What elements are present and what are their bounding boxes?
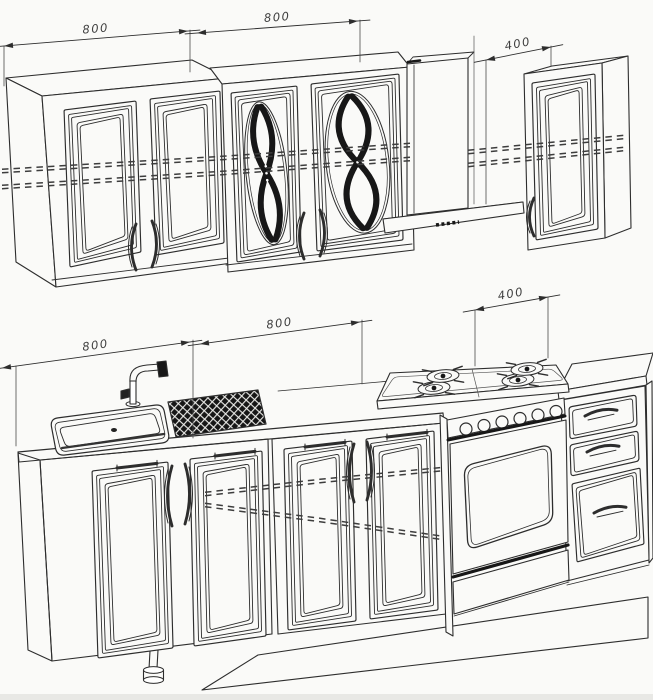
dimension-label-bottom-mid: 800 [265,314,293,331]
leg-foot-top [144,667,164,674]
dimension-arrow [475,306,484,311]
dimension-arrow [200,340,209,345]
faucet-neck [130,364,160,382]
dimension-label-bottom-right: 400 [497,284,525,302]
edge-line [157,650,158,668]
counter-back-edge [278,381,390,391]
faucet [121,361,168,407]
wall-cabinet-right-400 [474,36,631,250]
dimension-arrow [539,296,548,301]
door-handle [185,464,190,524]
grate-bar [537,359,546,362]
stove-knob [478,420,490,432]
sink-cabinet-800 [18,439,272,683]
dimension-arrow [181,341,190,346]
base-cabinet-mid-800 [272,423,446,634]
drainer-grid [168,390,266,437]
edge-line [149,651,150,669]
scan-edge-artifact [0,694,653,700]
stove-knob [514,413,526,425]
dimension-arrow [351,321,360,326]
dimension-arrow [2,364,11,369]
base-cabinet-row [18,353,653,690]
dimension-arrow [486,56,495,61]
stove-knob [496,416,508,428]
dimension-label-top-right: 400 [503,34,532,53]
dimension-arrow [4,43,13,48]
faucet-handle [121,389,129,399]
faucet-neck [136,370,159,382]
faucet-spout [157,361,168,377]
grate-bar [453,366,462,369]
hood-chimney [407,58,468,215]
dimension-label-top-left: 800 [82,20,110,36]
sink-and-faucet [51,361,266,455]
dimension-arrow [542,46,551,51]
cabinet-right-edge [268,439,272,634]
wall-cabinet-row [2,36,631,287]
stove-knob [460,423,472,435]
adjustable-leg [144,650,164,683]
cabinet-left-edge [272,439,278,634]
drawing-canvas: 800800400800800400 [0,0,653,700]
dimension-label-top-mid: 800 [263,9,290,25]
dimension-arrow [349,19,358,24]
dimension-label-bottom-left: 800 [81,336,109,354]
cabinet-side-face [18,453,52,661]
drawer-unit-400 [558,353,653,585]
grate-bar [506,362,515,365]
sink-drain [111,428,117,432]
hood-vent-mark [408,61,420,63]
leg-foot-bottom [144,677,164,684]
cabinet-side-face [602,56,631,238]
kitchen-technical-drawing: 800800400800800400 [0,0,653,700]
faucet-body [130,381,136,404]
